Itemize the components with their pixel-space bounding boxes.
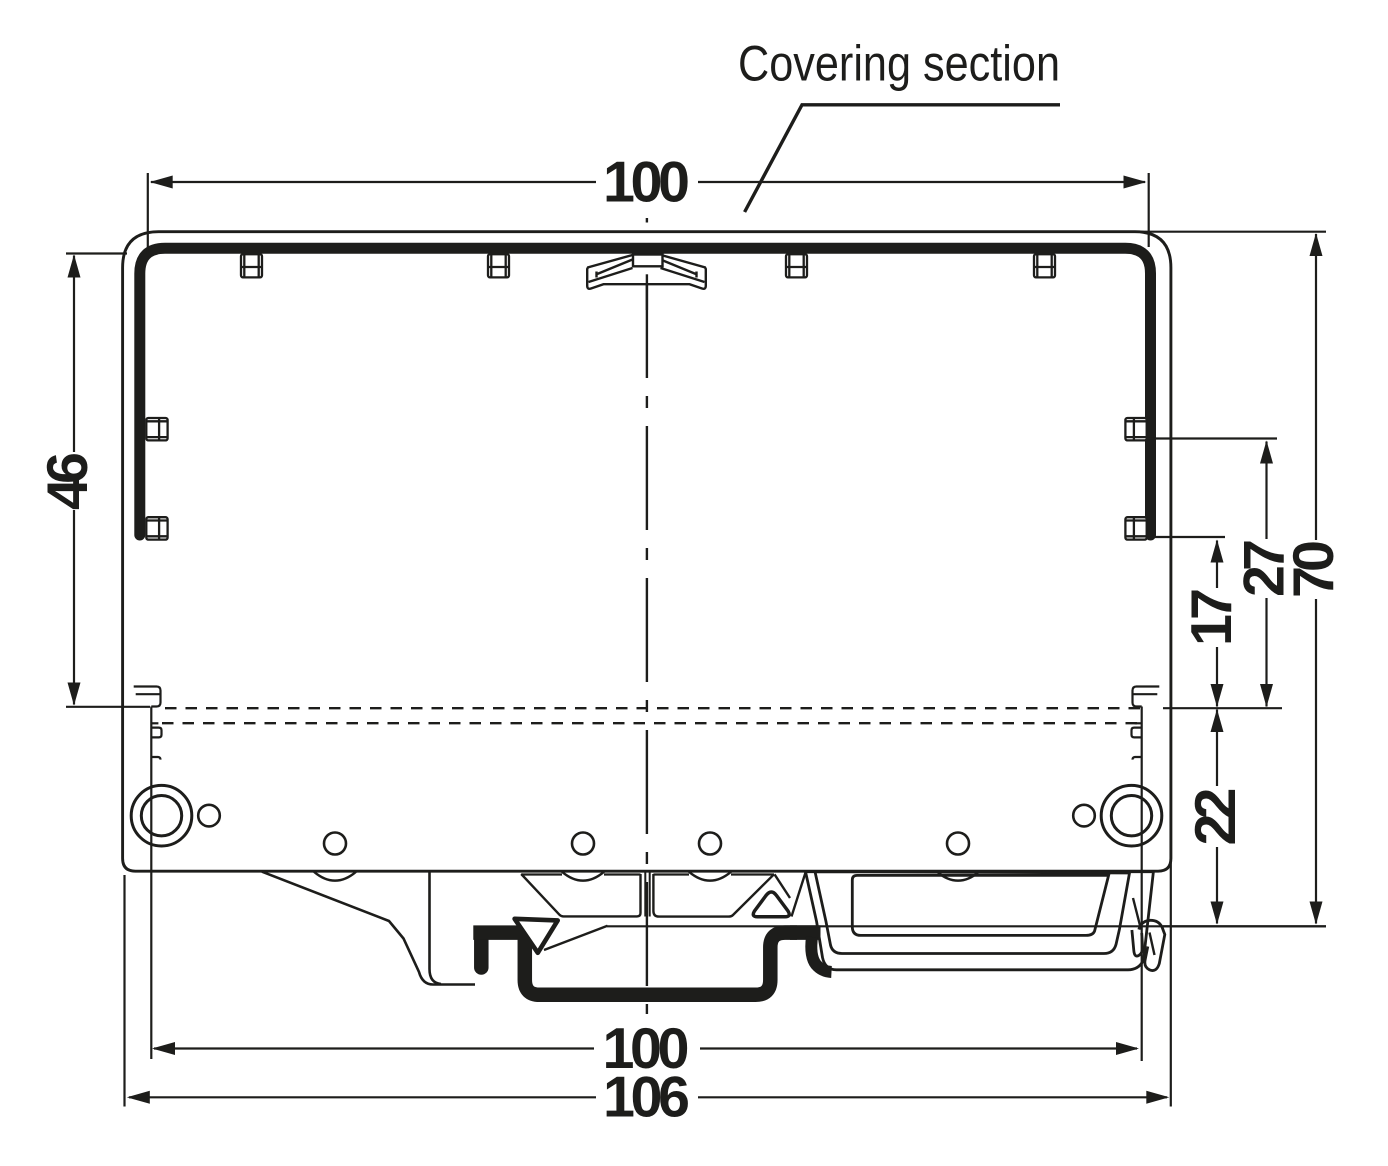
svg-text:22: 22	[1184, 788, 1248, 846]
svg-text:Covering section: Covering section	[738, 36, 1060, 92]
svg-text:46: 46	[36, 452, 100, 510]
svg-text:100: 100	[603, 151, 690, 215]
svg-text:70: 70	[1282, 540, 1346, 598]
svg-text:106: 106	[603, 1066, 690, 1130]
